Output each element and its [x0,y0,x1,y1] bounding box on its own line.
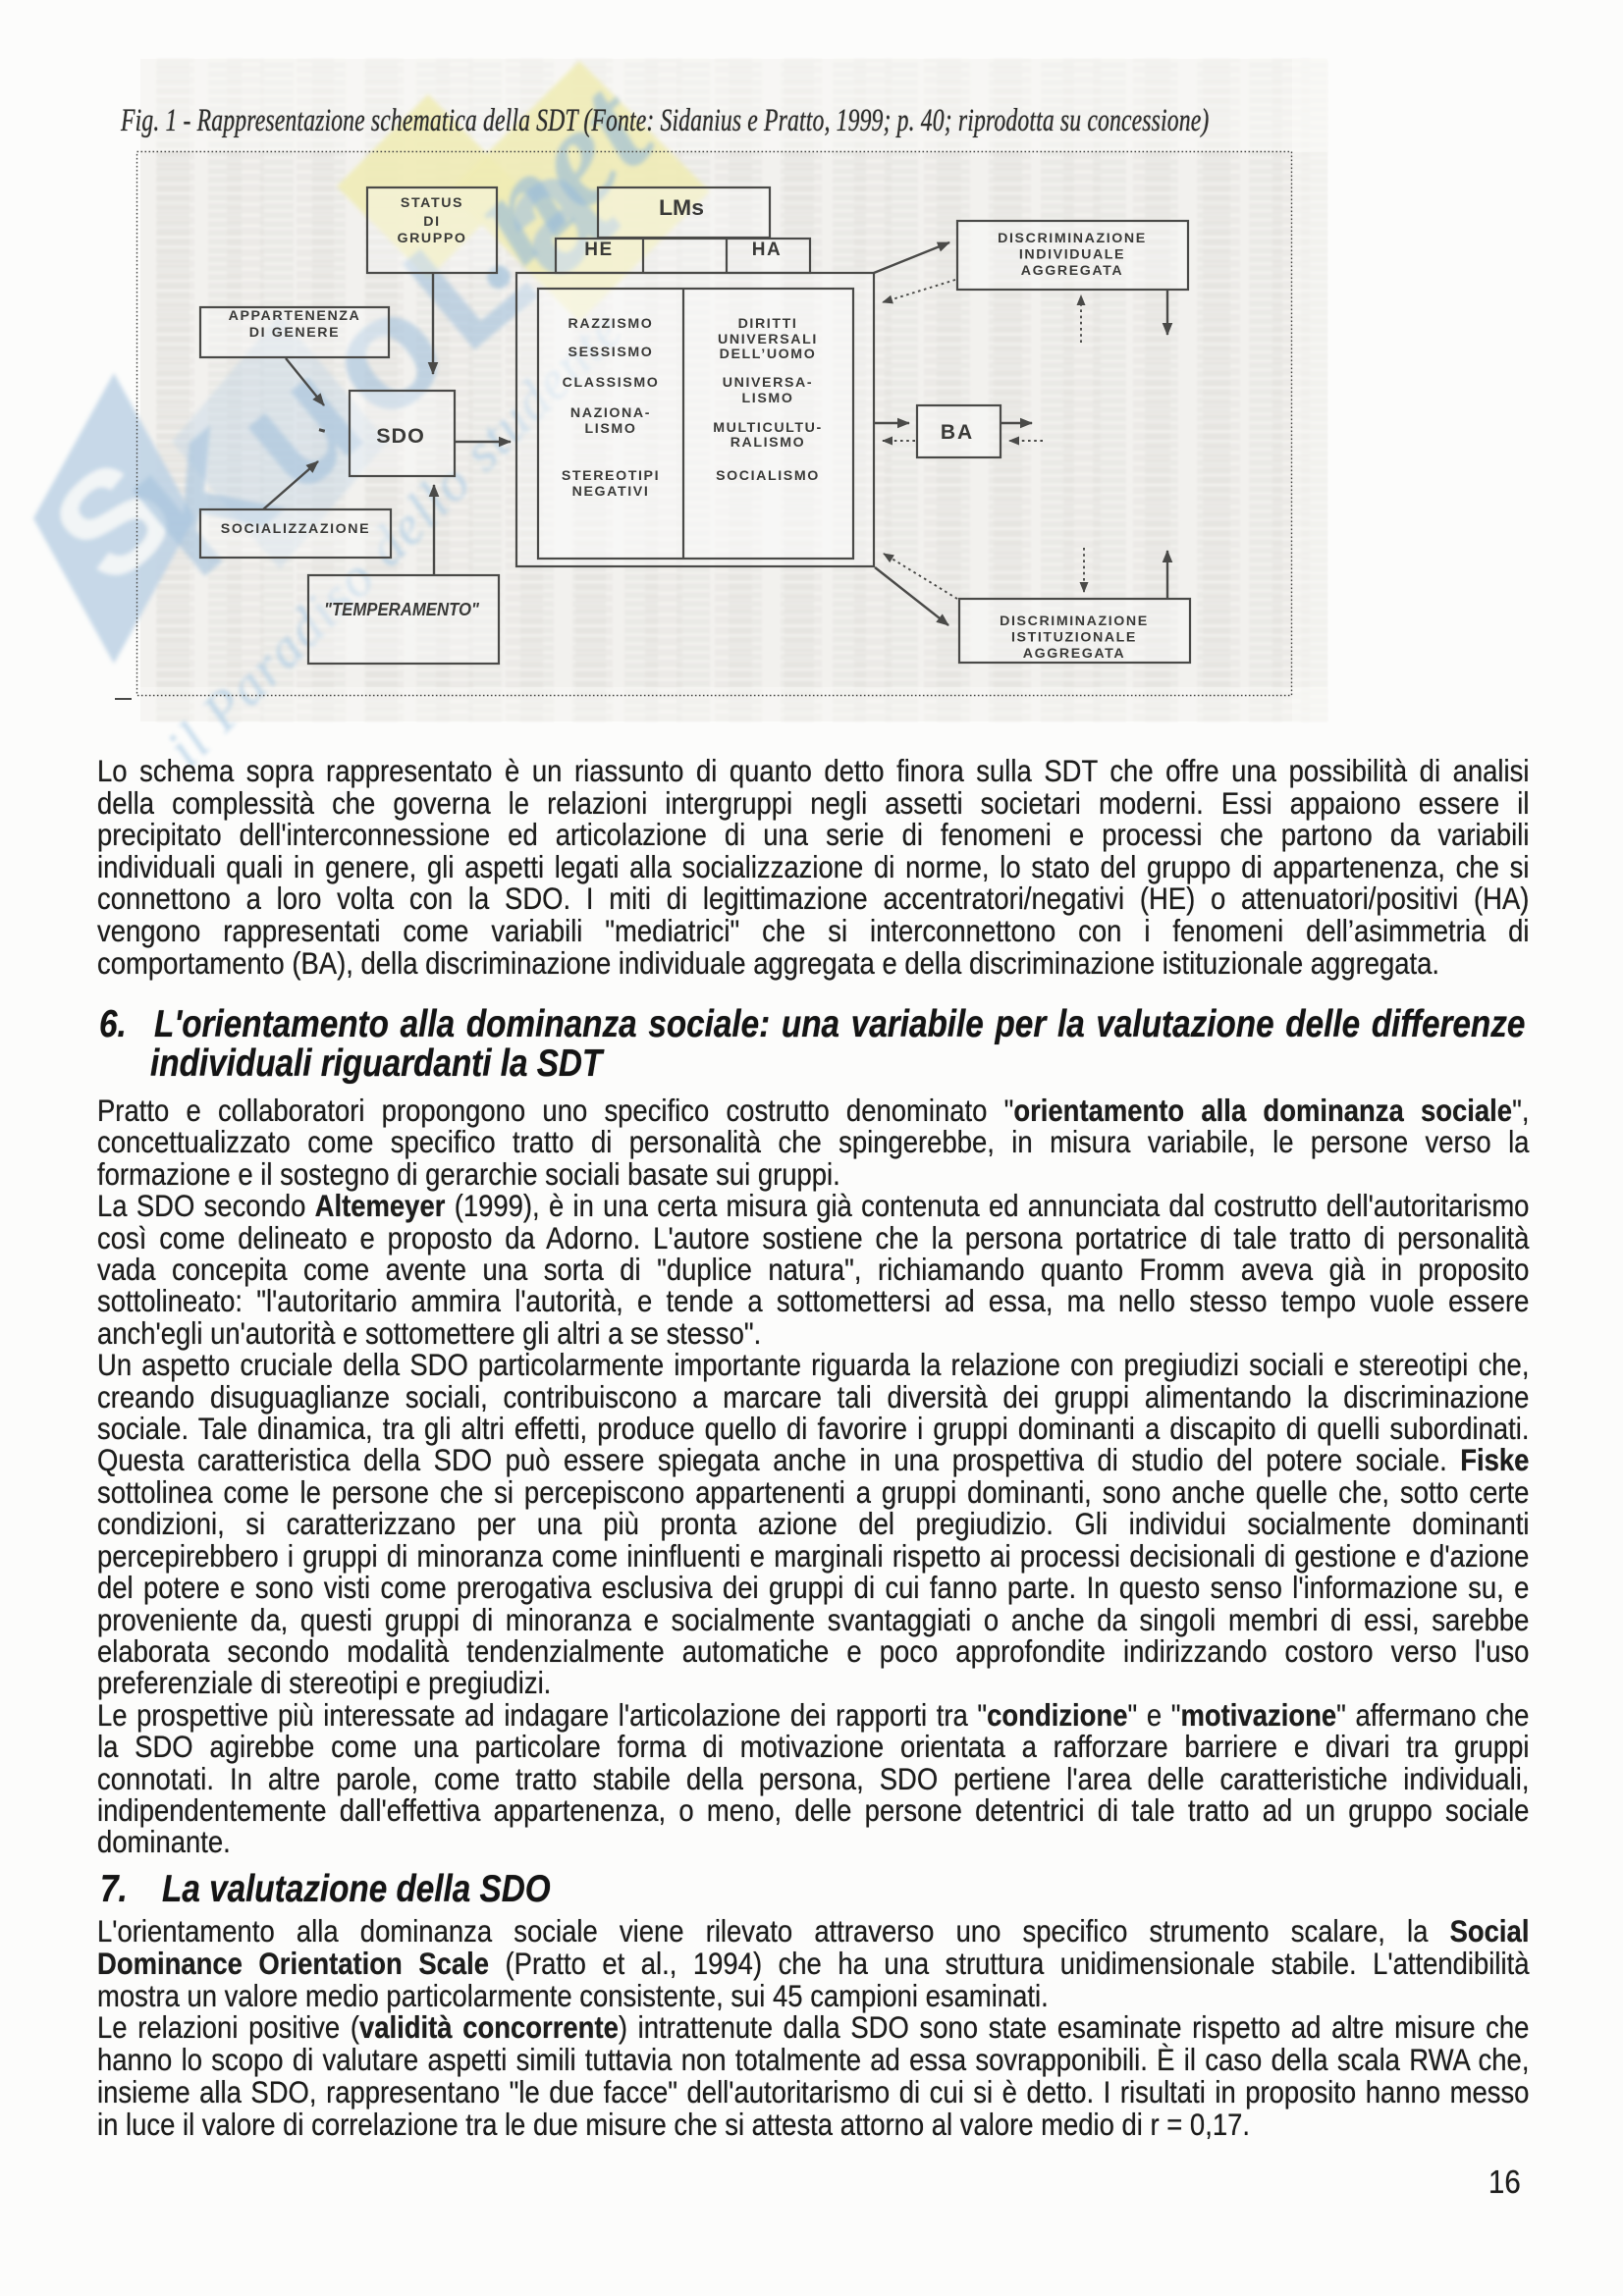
svg-text:LMs: LMs [659,195,704,220]
svg-text:SOCIALISMO: SOCIALISMO [716,468,820,484]
svg-text:STEREOTIPINEGATIVI: STEREOTIPINEGATIVI [562,468,660,500]
svg-text:SDO: SDO [376,424,425,448]
svg-text:CLASSISMO: CLASSISMO [563,375,660,391]
svg-text:"TEMPERAMENTO": "TEMPERAMENTO" [324,599,479,619]
svg-text:SOCIALIZZAZIONE: SOCIALIZZAZIONE [221,521,370,537]
svg-text:RAZZISMO: RAZZISMO [568,316,654,332]
svg-text:BA: BA [941,421,974,444]
svg-text:SESSISMO: SESSISMO [568,345,654,360]
svg-text:HA: HA [752,240,782,260]
svg-text:HE: HE [584,240,613,260]
